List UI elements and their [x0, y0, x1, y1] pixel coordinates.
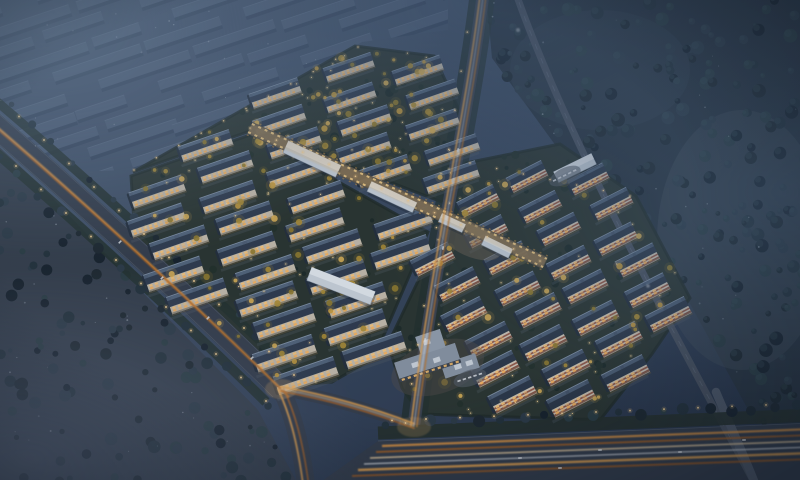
aerial-night-render: [0, 0, 800, 480]
scene-canvas: [0, 0, 800, 480]
vignette: [0, 0, 800, 480]
